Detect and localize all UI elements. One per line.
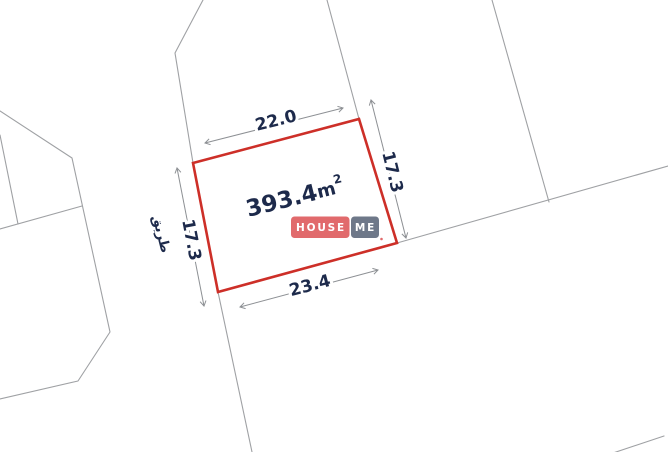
land-plot-diagram: 22.0 17.3 23.4 17.3 طريق 393.4m2 HOUSE M… [0, 0, 668, 452]
parcel-boundary-line-right [492, 0, 549, 202]
road-name-label: طريق [149, 213, 174, 254]
logo-period-dot [380, 238, 383, 241]
houseme-watermark: HOUSE ME [291, 217, 383, 241]
parcel-boundary-line-top [327, 0, 359, 119]
survey-drawing-canvas: 22.0 17.3 23.4 17.3 طريق 393.4m2 HOUSE M… [0, 0, 668, 452]
dimension-label-left: 17.3 [177, 218, 205, 263]
southeast-boundary-fragment [613, 436, 664, 452]
west-parcel-inner-line [0, 135, 18, 224]
road-boundary-line-bottom [397, 166, 668, 243]
me-badge-text: ME [355, 222, 376, 234]
dimension-label-right: 17.3 [377, 149, 407, 195]
house-badge-text: HOUSE [296, 222, 346, 234]
dimension-label-bottom: 23.4 [287, 271, 333, 301]
dimension-label-top: 22.0 [253, 106, 299, 136]
west-parcel-boundary [0, 111, 110, 399]
west-parcel-split-line [0, 206, 82, 229]
